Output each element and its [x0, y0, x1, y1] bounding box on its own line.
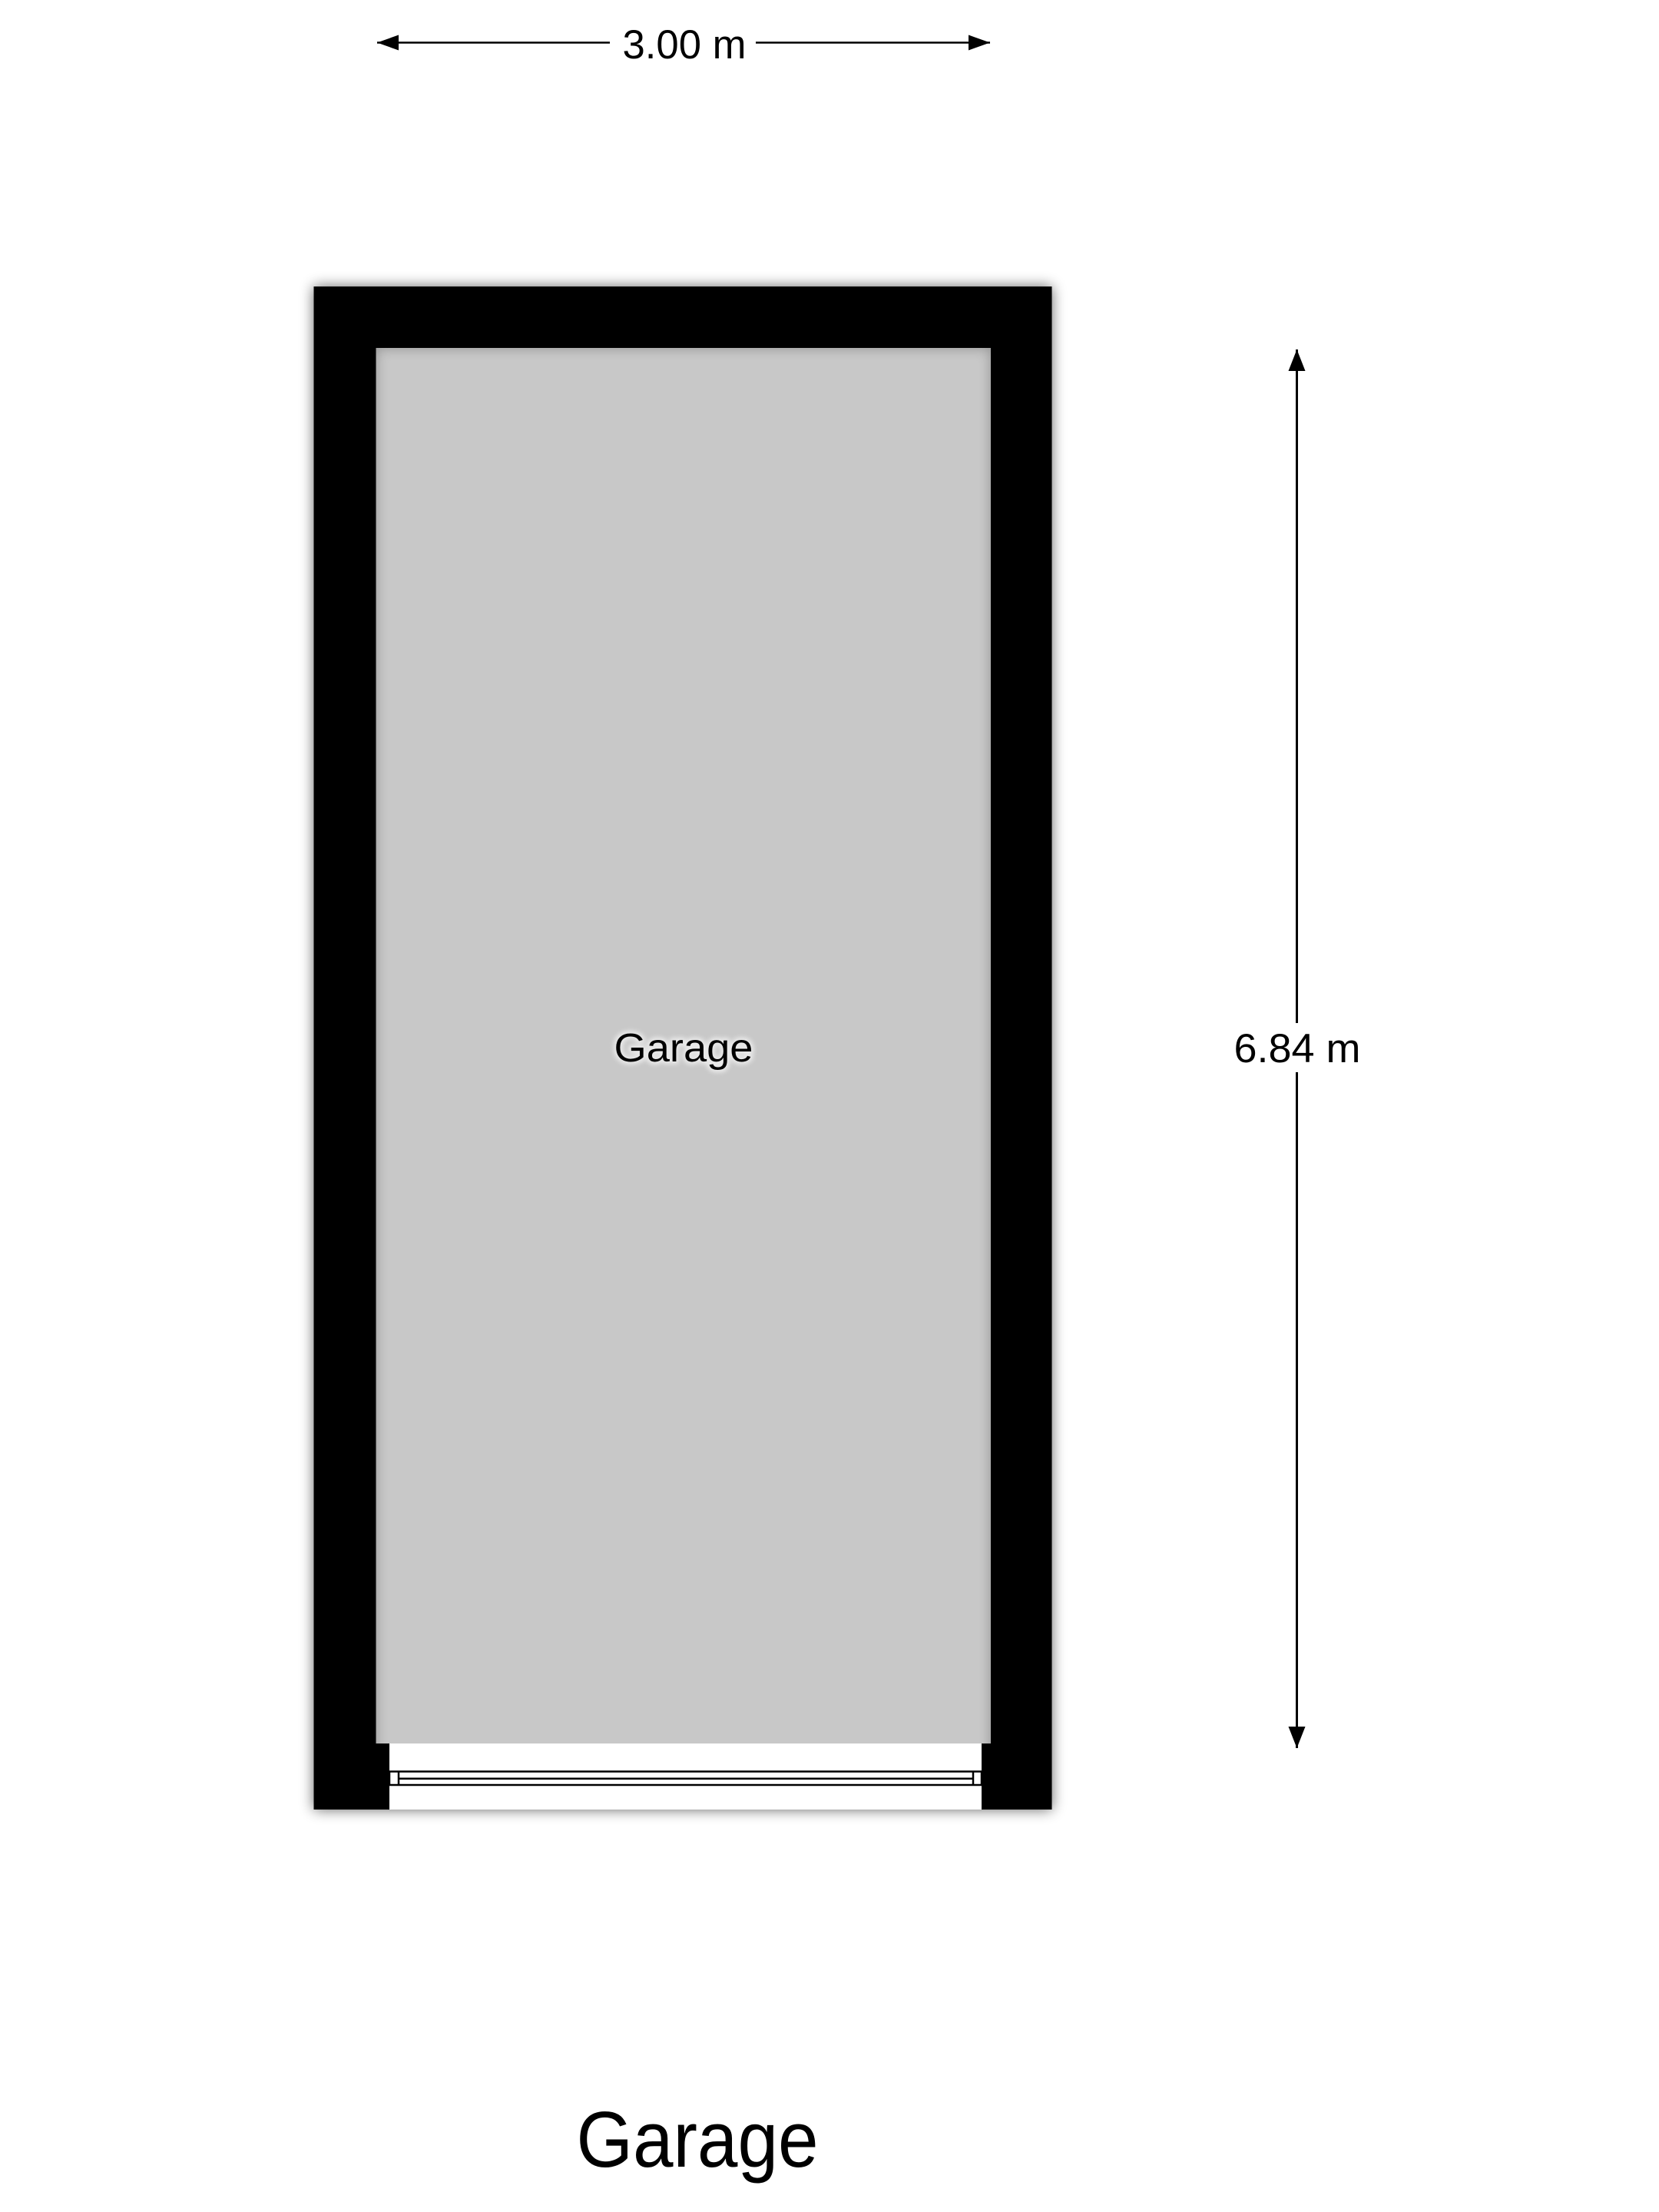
svg-text:Garage: Garage	[577, 2095, 819, 2184]
svg-text:3.00 m: 3.00 m	[623, 22, 747, 68]
svg-text:Garage: Garage	[614, 1026, 753, 1071]
svg-text:6.84 m: 6.84 m	[1234, 1026, 1361, 1071]
